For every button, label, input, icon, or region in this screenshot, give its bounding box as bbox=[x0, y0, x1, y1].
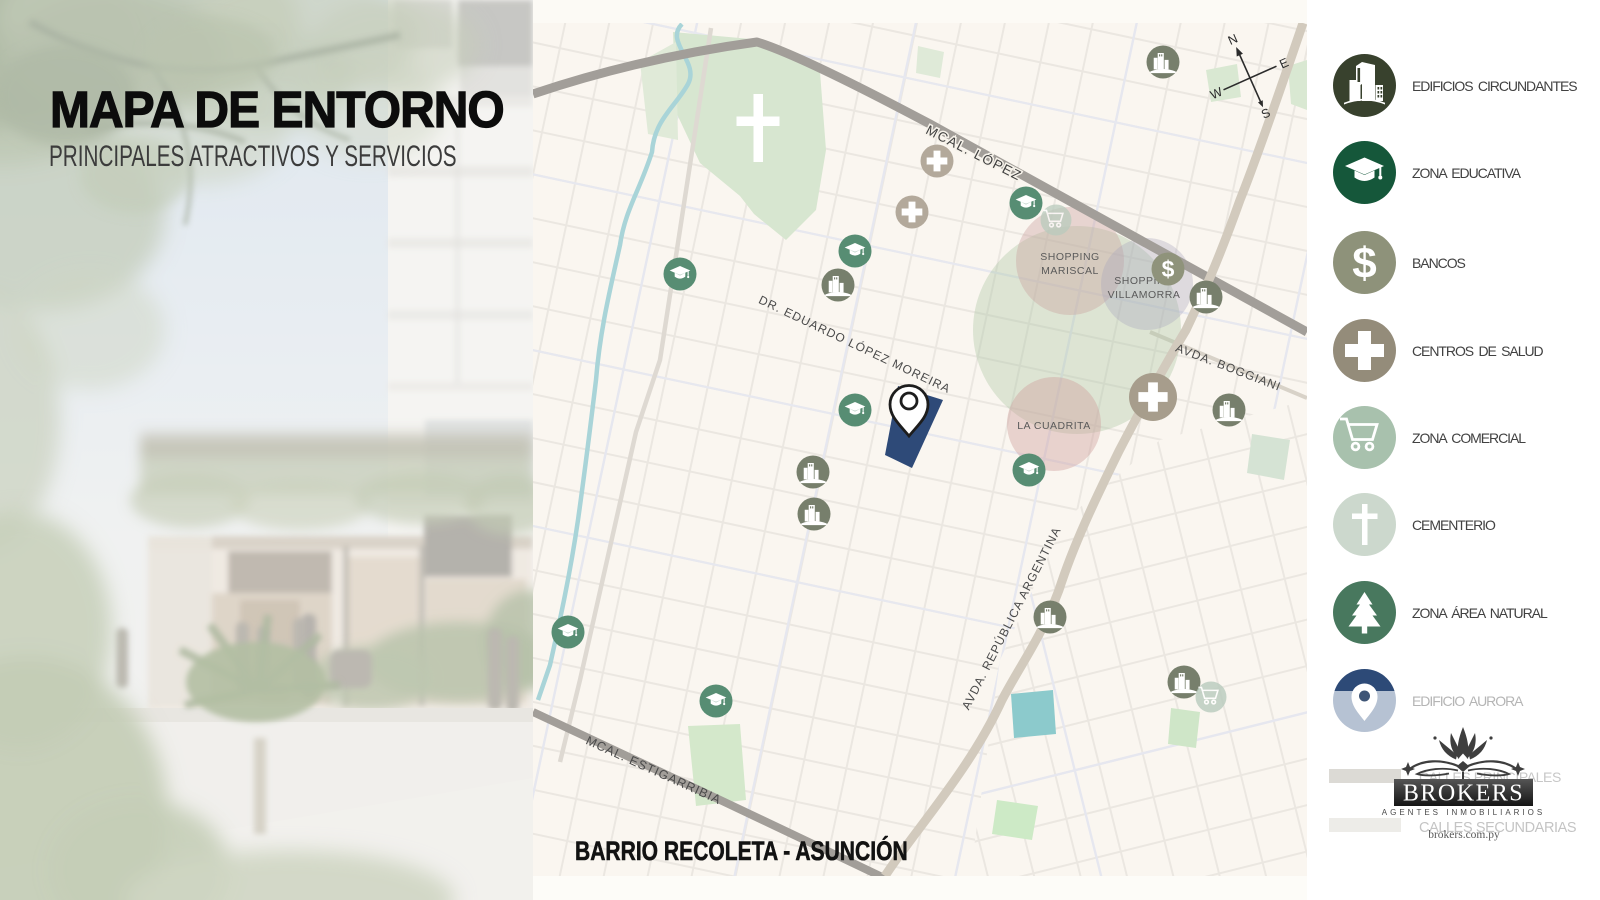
svg-text:VILLAMORRA: VILLAMORRA bbox=[1108, 289, 1181, 301]
svg-text:LA CUADRITA: LA CUADRITA bbox=[1017, 420, 1091, 432]
svg-text:BROKERS: BROKERS bbox=[1403, 781, 1524, 807]
svg-text:$: $ bbox=[1352, 239, 1376, 288]
svg-text:brokers.com.py: brokers.com.py bbox=[1428, 829, 1500, 841]
svg-text:MARISCAL: MARISCAL bbox=[1041, 265, 1099, 277]
svg-text:AGENTES INMOBILIARIOS: AGENTES INMOBILIARIOS bbox=[1382, 808, 1545, 817]
svg-text:$: $ bbox=[1162, 256, 1175, 282]
svg-text:SHOPPING: SHOPPING bbox=[1040, 251, 1099, 263]
